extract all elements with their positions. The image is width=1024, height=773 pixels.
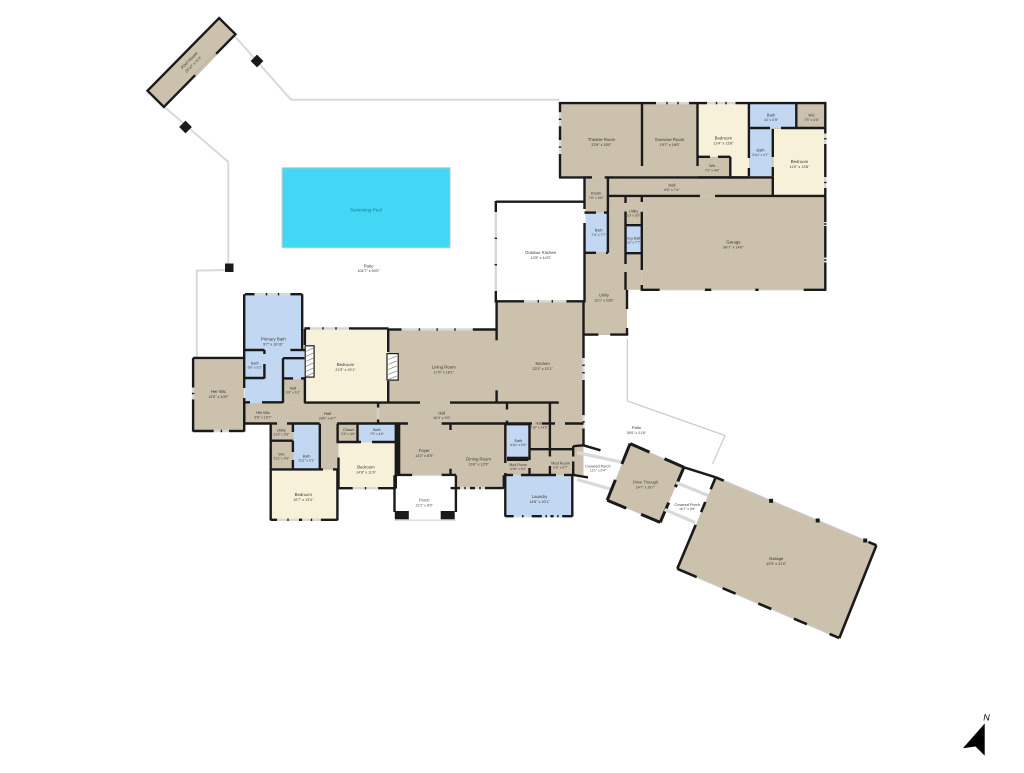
svg-text:Patio: Patio xyxy=(632,425,642,430)
svg-text:13'2" x 8'9": 13'2" x 8'9" xyxy=(415,454,434,458)
svg-text:Garage: Garage xyxy=(769,556,784,561)
svg-text:9'9" x 10'7": 9'9" x 10'7" xyxy=(254,416,272,420)
svg-text:13'6" x 10'6": 13'6" x 10'6" xyxy=(208,395,229,399)
svg-text:Hall: Hall xyxy=(438,411,445,416)
svg-text:6'6" x 5'2": 6'6" x 5'2" xyxy=(248,366,263,370)
svg-text:Hall: Hall xyxy=(668,183,675,188)
svg-text:16'7" x 13'4": 16'7" x 13'4" xyxy=(293,498,314,502)
svg-text:7'5" x 4'6": 7'5" x 4'6" xyxy=(804,118,820,122)
svg-text:Kitchen: Kitchen xyxy=(536,361,551,366)
svg-text:5'10" x 3'9": 5'10" x 3'9" xyxy=(274,433,290,437)
svg-text:Drive Through: Drive Through xyxy=(633,480,658,485)
svg-text:Bath: Bath xyxy=(756,148,764,153)
svg-text:12'1" x 9'4": 12'1" x 9'4" xyxy=(590,469,607,473)
svg-text:Utility: Utility xyxy=(599,293,609,298)
svg-text:14'8" x 11'6": 14'8" x 11'6" xyxy=(356,471,377,475)
svg-text:21'9" x 16'1": 21'9" x 16'1" xyxy=(335,368,356,372)
svg-text:Bedroom: Bedroom xyxy=(295,492,313,497)
svg-text:10' x 6'9": 10' x 6'9" xyxy=(764,118,779,122)
svg-text:16'4" x 5'5": 16'4" x 5'5" xyxy=(433,416,451,420)
svg-text:5'2" x 4'6": 5'2" x 4'6" xyxy=(341,432,355,436)
svg-text:Room: Room xyxy=(591,191,601,196)
svg-text:Foyer: Foyer xyxy=(419,448,431,453)
svg-text:5'11" x 4'9": 5'11" x 4'9" xyxy=(274,457,289,461)
svg-text:15'6" x 12'9": 15'6" x 12'9" xyxy=(468,463,489,467)
svg-text:Wic: Wic xyxy=(808,113,815,118)
svg-text:26'5" x 6'7": 26'5" x 6'7" xyxy=(319,417,337,421)
svg-text:24'7" x 20'7": 24'7" x 20'7" xyxy=(636,486,656,490)
svg-text:Bedroom: Bedroom xyxy=(715,136,733,141)
svg-text:Bedroom: Bedroom xyxy=(357,465,375,470)
svg-text:36'5" x 21'8": 36'5" x 21'8" xyxy=(627,431,647,435)
svg-text:8'6" x 6'7": 8'6" x 6'7" xyxy=(553,466,568,470)
svg-text:8'6" x 7'4": 8'6" x 7'4" xyxy=(664,188,680,192)
svg-text:Swimming Pool: Swimming Pool xyxy=(350,208,382,213)
svg-text:12'8" x 14'0": 12'8" x 14'0" xyxy=(531,256,552,260)
svg-text:Patio: Patio xyxy=(364,263,374,268)
svg-text:Living Room: Living Room xyxy=(432,365,456,370)
svg-text:Dining Room: Dining Room xyxy=(466,457,491,462)
svg-text:Laundry: Laundry xyxy=(532,494,548,499)
svg-text:9'10" x 5'6": 9'10" x 5'6" xyxy=(510,443,527,447)
svg-text:His Wic: His Wic xyxy=(256,410,270,415)
svg-text:7'5" x 4'6": 7'5" x 4'6" xyxy=(370,432,384,436)
svg-text:13'4" x 13'8": 13'4" x 13'8" xyxy=(713,142,734,146)
svg-text:Exercise Room: Exercise Room xyxy=(655,137,685,142)
svg-text:9'7" x 16'10": 9'7" x 16'10" xyxy=(263,343,284,347)
svg-text:43'9" x 31'6": 43'9" x 31'6" xyxy=(766,562,787,566)
svg-text:9'9" x 5'2": 9'9" x 5'2" xyxy=(286,391,301,395)
svg-text:Garage: Garage xyxy=(726,240,741,245)
svg-text:15'1" x 23'8": 15'1" x 23'8" xyxy=(594,299,614,303)
svg-text:7'4" x 7'7": 7'4" x 7'7" xyxy=(591,233,607,237)
svg-text:Primary Bath: Primary Bath xyxy=(261,337,286,342)
svg-text:17'6" x 18'1": 17'6" x 18'1" xyxy=(434,371,455,375)
svg-text:56'7" x 14'6": 56'7" x 14'6" xyxy=(723,246,744,250)
svg-text:N: N xyxy=(983,713,990,723)
svg-text:104'7" x 94'6": 104'7" x 94'6" xyxy=(357,269,380,273)
svg-text:4'10" x 14'5": 4'10" x 14'5" xyxy=(530,426,549,430)
svg-text:7'6" x 6'0": 7'6" x 6'0" xyxy=(589,196,605,200)
svg-text:Bedroom: Bedroom xyxy=(337,362,355,367)
svg-text:Outdoor Kitchen: Outdoor Kitchen xyxy=(525,250,557,255)
svg-text:19'7" x 18'6": 19'7" x 18'6" xyxy=(660,143,681,147)
svg-text:5'10" x 4'7": 5'10" x 4'7" xyxy=(752,153,769,157)
svg-text:Theatre Room: Theatre Room xyxy=(588,137,616,142)
svg-text:10' x 7'7": 10' x 7'7" xyxy=(627,241,641,245)
svg-text:7'5" x 4'6": 7'5" x 4'6" xyxy=(705,168,721,172)
svg-text:9'10" x 3'2": 9'10" x 3'2" xyxy=(510,467,526,471)
svg-text:Porch: Porch xyxy=(419,498,429,503)
svg-text:10' x 5'9": 10' x 5'9" xyxy=(627,214,641,218)
svg-text:Wic: Wic xyxy=(709,163,716,168)
svg-text:Hall: Hall xyxy=(324,411,331,416)
svg-text:22'8" x 18'6": 22'8" x 18'6" xyxy=(591,143,612,147)
svg-text:22'2" x 15'1": 22'2" x 15'1" xyxy=(533,367,554,371)
svg-text:11'6" x 13'8": 11'6" x 13'8" xyxy=(790,165,811,169)
svg-text:Bath: Bath xyxy=(767,113,775,118)
svg-text:Bedroom: Bedroom xyxy=(791,159,809,164)
svg-text:14'8" x 10'1": 14'8" x 10'1" xyxy=(529,500,550,504)
svg-text:5'11" x 9'1": 5'11" x 9'1" xyxy=(299,459,316,463)
svg-text:21'2" x 9'0": 21'2" x 9'0" xyxy=(416,504,434,508)
svg-text:Her Wic: Her Wic xyxy=(211,389,227,394)
svg-text:16'7" x 9'9": 16'7" x 9'9" xyxy=(679,507,696,511)
svg-text:Bath: Bath xyxy=(595,228,603,233)
